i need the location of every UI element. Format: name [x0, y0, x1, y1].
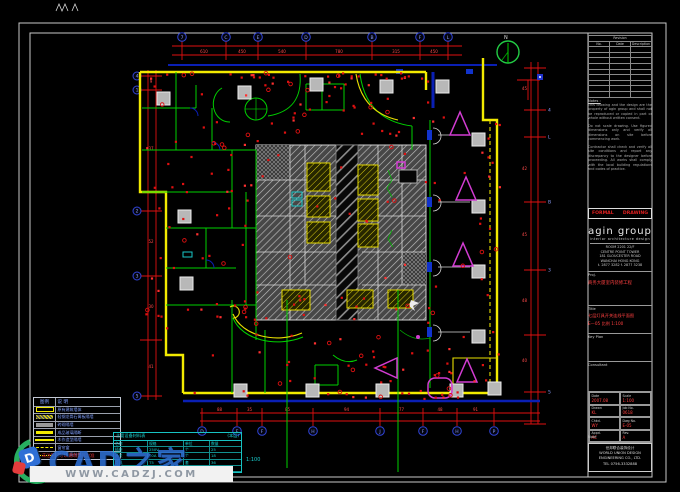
svg-text:35: 35: [247, 407, 253, 412]
issue-stamp: FORMAL DRAWING: [588, 208, 652, 219]
titleblock-field: Drawn KL: [589, 405, 620, 418]
svg-text:B: B: [370, 35, 373, 41]
svg-text:45: 45: [522, 86, 528, 91]
titleblock-field: Date 2007.08: [589, 392, 620, 405]
note-paragraph: Contractor shall check and verify all si…: [588, 145, 652, 172]
legend-desc: 砖砌隔墙: [56, 422, 120, 428]
revision-table: Revision No. Date Description: [588, 35, 652, 98]
svg-text:P: P: [493, 429, 496, 435]
schedule-cell: 25: [210, 447, 241, 452]
svg-text:610: 610: [200, 49, 208, 54]
firm-contact: t. 2877 3282 f. 2877 3238: [588, 263, 652, 267]
svg-text:H: H: [455, 429, 458, 435]
svg-text:85: 85: [285, 407, 291, 412]
field-value: KL: [592, 410, 618, 415]
legend-desc: 成品玻璃隔断: [56, 430, 120, 436]
svg-text:7: 7: [181, 35, 184, 41]
drawing-title-line1: 七层灯具开关连线平面图: [588, 313, 652, 319]
cad-viewer-page: { "watermark": { "brand": "CAD之家", "site…: [0, 0, 680, 488]
watermark-strip: WWW.CADZJ.COM: [30, 466, 233, 482]
north-arrow: N: [497, 35, 543, 100]
titleblock-field: Chkd. WY: [589, 417, 620, 430]
svg-text:315: 315: [392, 49, 400, 54]
svg-text:3: 3: [548, 268, 551, 274]
svg-text:1: 1: [136, 88, 139, 94]
svg-text:94: 94: [344, 407, 350, 412]
drawing-title-line2: E—05 比例 1:100: [588, 321, 652, 327]
consultant-label: Consultant: [588, 363, 652, 367]
svg-text:N: N: [504, 35, 508, 41]
field-value: 0618: [623, 410, 649, 415]
legend-desc: 原有建筑墙体: [56, 407, 120, 413]
project-label: Proj.: [588, 273, 652, 277]
general-notes: Notes : This drawing and the design are …: [588, 99, 652, 175]
svg-text:77: 77: [399, 407, 405, 412]
project-section: Proj. 商务大厦室内装修工程: [588, 273, 652, 286]
schedule-title-right: (本层): [227, 433, 239, 439]
legend-symbol-gray-bar: [36, 423, 53, 427]
svg-text:C: C: [224, 35, 227, 41]
keyplan-section: Key Plan: [588, 335, 652, 339]
left-dimension-chain: 41235937523041: [133, 70, 162, 400]
legend-symbol-hollow-bar: [36, 407, 54, 412]
schedule-cell: 18: [210, 453, 241, 458]
svg-text:B: B: [548, 200, 551, 206]
svg-text:F: F: [419, 35, 422, 41]
firm-logo: agin group: [588, 226, 652, 237]
svg-text:F: F: [422, 429, 425, 435]
field-value: 1:100: [623, 398, 649, 403]
svg-text:42: 42: [522, 166, 528, 171]
revision-col-desc: Description: [631, 41, 652, 47]
svg-text:4: 4: [548, 108, 551, 114]
schedule-cell: 36: [210, 460, 241, 465]
note-paragraph: Do not scale drawing. Use figured dimens…: [588, 124, 652, 142]
svg-text:30: 30: [148, 304, 154, 309]
note-paragraph: This drawing and the design are the prop…: [588, 103, 652, 121]
field-value: WY: [592, 423, 618, 428]
svg-text:88: 88: [217, 407, 223, 412]
svg-text:780: 780: [335, 49, 343, 54]
stamp-right-text: DRAWING: [623, 211, 648, 216]
svg-text:H: H: [311, 429, 314, 435]
titleblock-field: Dwg No. E-05: [620, 417, 651, 430]
note-label-row: Note: [588, 435, 652, 439]
svg-text:48: 48: [437, 407, 443, 412]
svg-text:9: 9: [150, 79, 153, 84]
legend-symbol-hatch-bar: [36, 415, 53, 419]
legend-row: 原有建筑墙体: [34, 406, 120, 414]
revision-empty-row: [589, 91, 652, 97]
company-box: 世邦联合装饰设计WORLD UNION DESIGNENGINEERING CO…: [588, 443, 652, 472]
legend-row: 砖砌隔墙: [34, 421, 120, 429]
consultant-section: Consultant: [588, 363, 652, 367]
company-line: TEL 0756-3332888: [589, 462, 651, 467]
svg-text:5: 5: [136, 394, 139, 400]
svg-text:450: 450: [430, 49, 438, 54]
field-value: 2007.08: [592, 398, 618, 403]
titleblock-field: Scale 1:100: [620, 392, 651, 405]
firm-block: agin group interior architecture design …: [588, 226, 652, 268]
schedule-col-header: 数量: [210, 441, 241, 446]
svg-text:1:100: 1:100: [246, 457, 260, 463]
title-label: Title: [588, 307, 652, 311]
legend-row: 成品玻璃隔断: [34, 428, 120, 436]
legend-row: 轻钢龙骨石膏板隔墙: [34, 413, 120, 421]
bottom-dimension-chain: D88E35F85H94J77F48H91P: [198, 407, 540, 435]
title-section: Title 七层灯具开关连线平面图 E—05 比例 1:100: [588, 307, 652, 327]
svg-text:D: D: [304, 35, 308, 41]
titleblock: Revision No. Date Description Notes : Th…: [588, 33, 652, 477]
stamp-left-text: FORMAL: [592, 211, 614, 216]
svg-text:41: 41: [148, 364, 154, 369]
legend-desc: 轻钢龙骨石膏板隔墙: [56, 414, 120, 420]
right-dimension-chain: 4LB354542454840: [522, 62, 551, 424]
service-core: [256, 145, 426, 320]
titleblock-field: Job No. 0618: [620, 405, 651, 418]
svg-text:3: 3: [136, 274, 139, 280]
legend-header-symbol: 图例: [34, 398, 56, 406]
keyplan-label: Key Plan: [588, 335, 652, 339]
svg-text:52: 52: [148, 239, 154, 244]
top-dimension-chain: 7610C450E540D780B315F450L: [172, 33, 462, 60]
svg-text:91: 91: [473, 407, 479, 412]
note-label: Note: [588, 435, 652, 439]
svg-text:F: F: [261, 429, 264, 435]
svg-text:450: 450: [238, 49, 246, 54]
svg-text:540: 540: [278, 49, 286, 54]
project-name: 商务大厦室内装修工程: [588, 280, 652, 286]
svg-text:2: 2: [136, 209, 139, 215]
legend-symbol-solid-bar: [36, 431, 53, 434]
watermark-site: WWW.CADZJ.COM: [65, 469, 198, 480]
svg-text:J: J: [378, 429, 380, 435]
svg-text:48: 48: [522, 298, 528, 303]
svg-text:45: 45: [522, 232, 528, 237]
svg-text:4: 4: [136, 74, 139, 80]
svg-text:L: L: [548, 135, 551, 141]
svg-text:40: 40: [522, 358, 528, 363]
field-value: E-05: [623, 423, 649, 428]
firm-address: ROOM 2201 22/FCENTRE POINT TOWER181 GLOU…: [588, 245, 652, 263]
legend-header-desc: 说 明: [56, 399, 120, 405]
svg-text:5: 5: [548, 390, 551, 396]
svg-text:E: E: [257, 35, 260, 41]
firm-logo-subtitle: interior architecture design: [588, 237, 652, 241]
